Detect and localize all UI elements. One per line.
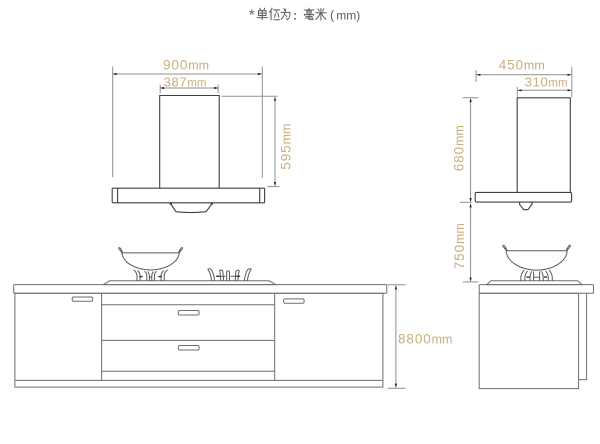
svg-text:900mm: 900mm <box>163 58 209 73</box>
svg-text:(: ( <box>330 9 335 23</box>
svg-text:750mm: 750mm <box>452 223 467 269</box>
svg-text:450mm: 450mm <box>499 58 545 73</box>
svg-text:mm): mm) <box>336 9 360 23</box>
svg-text:310mm: 310mm <box>525 75 568 90</box>
svg-text:8800mm: 8800mm <box>398 331 452 346</box>
svg-text:387mm: 387mm <box>164 74 207 89</box>
svg-text:680mm: 680mm <box>452 125 467 171</box>
svg-text:*: * <box>249 7 255 24</box>
svg-text:595mm: 595mm <box>279 124 294 170</box>
